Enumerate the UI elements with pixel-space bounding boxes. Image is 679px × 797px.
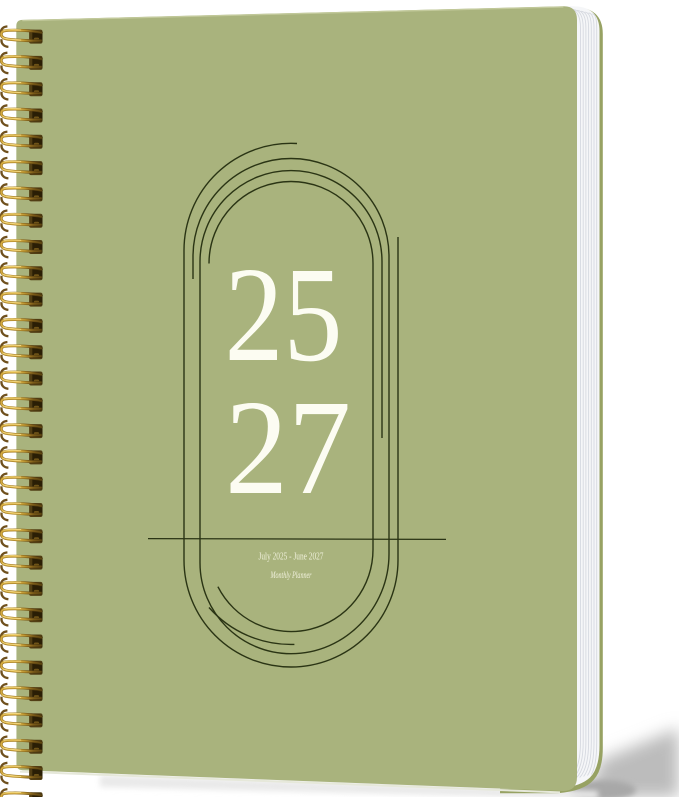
svg-text:25: 25: [225, 240, 343, 390]
svg-text:Monthly Planner: Monthly Planner: [270, 570, 312, 580]
svg-text:July 2025 - June 2027: July 2025 - June 2027: [259, 552, 324, 563]
svg-text:27: 27: [225, 373, 351, 523]
